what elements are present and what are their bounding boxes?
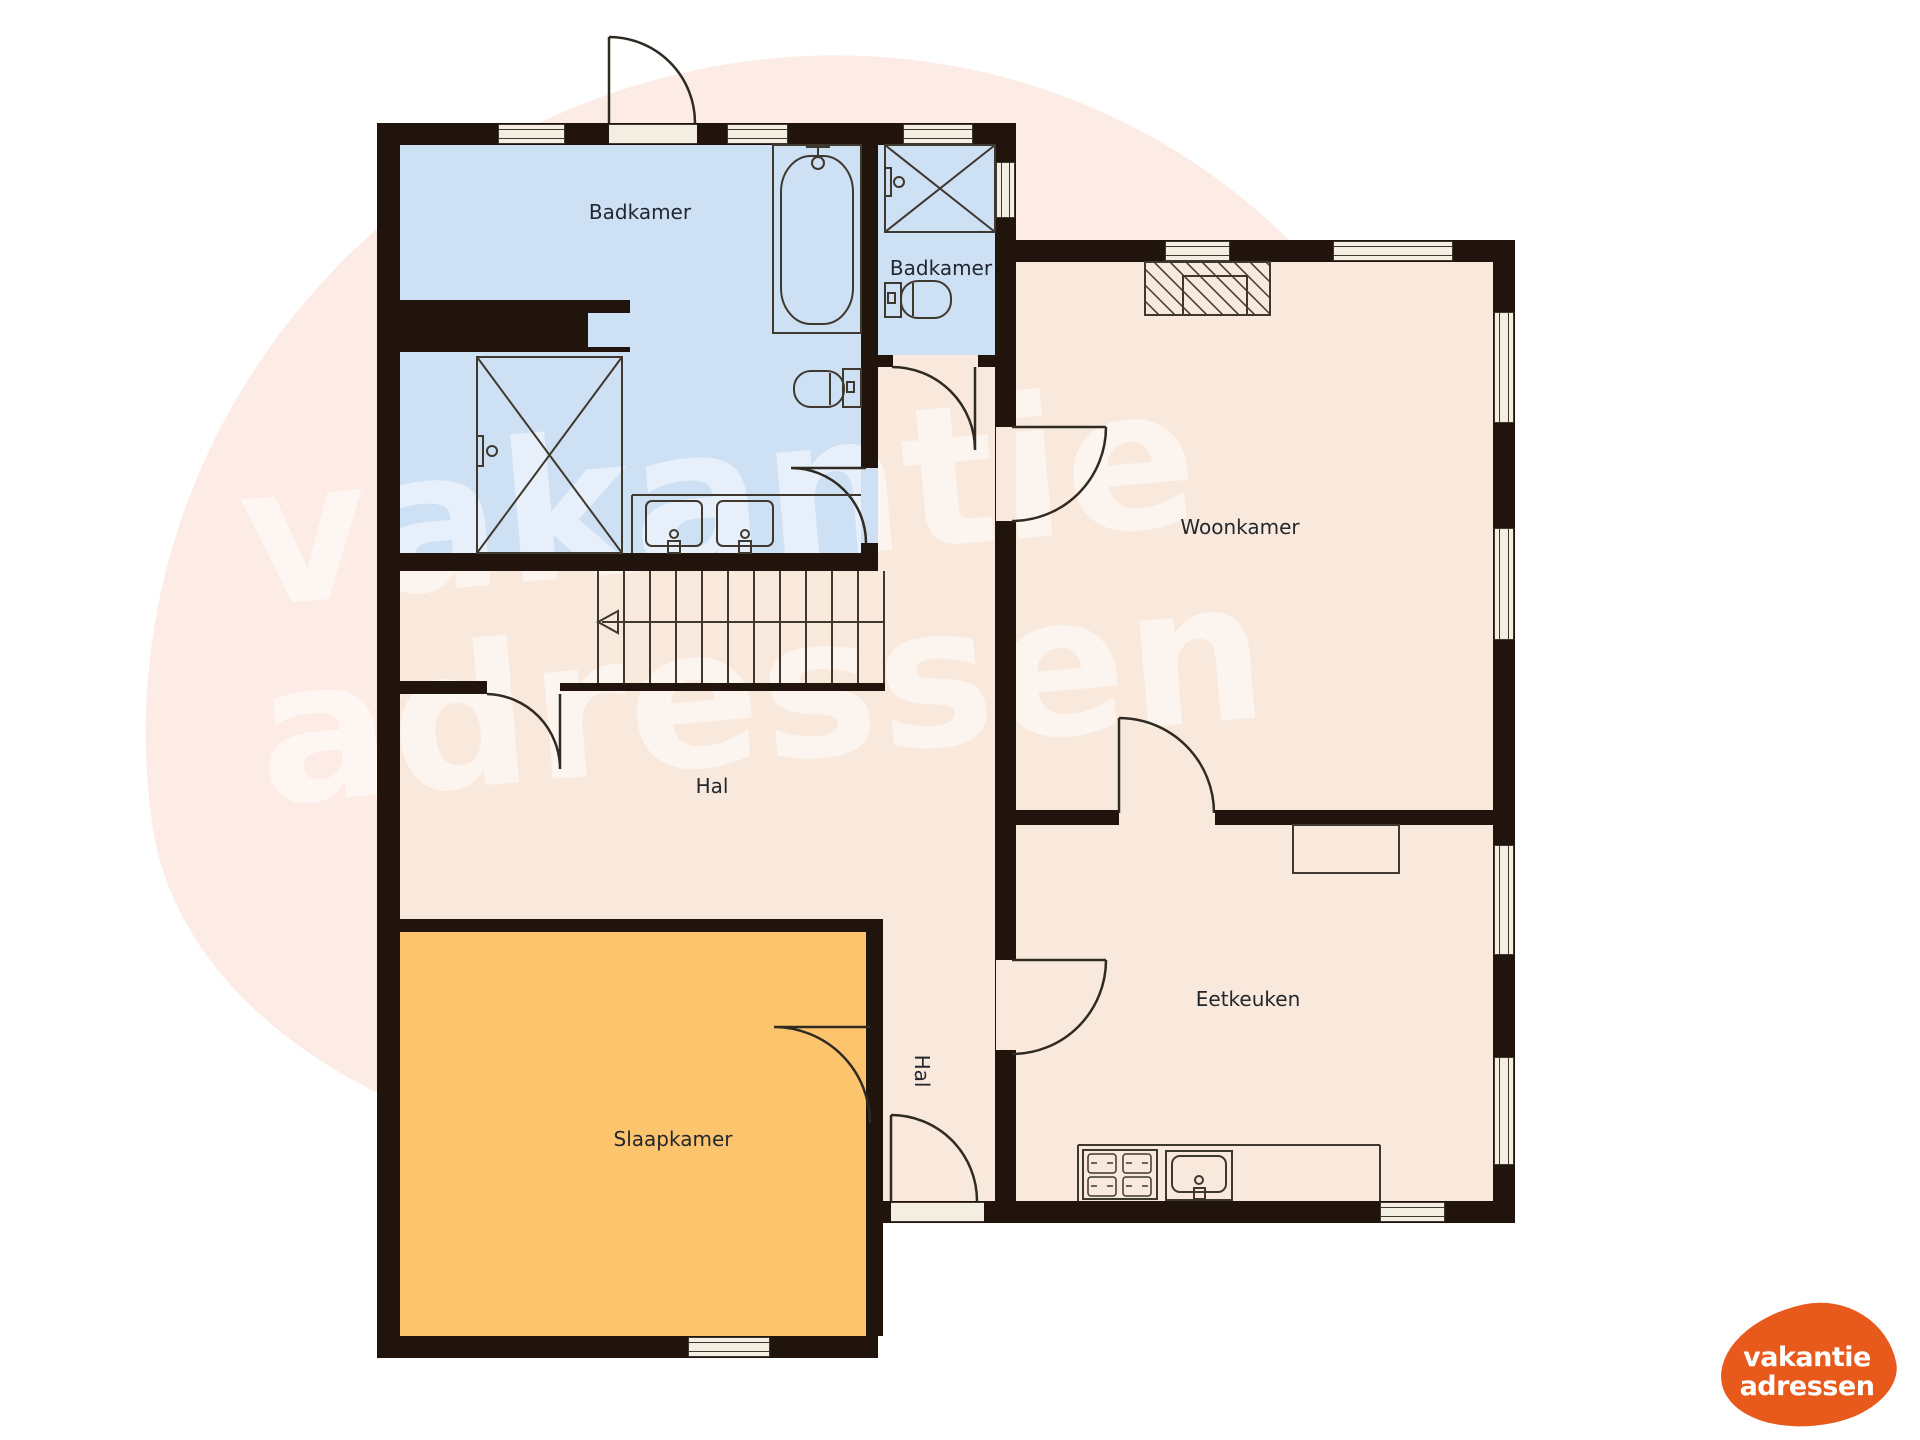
floorplan-canvas: vakantie adressen [0,0,1920,1440]
door-opening-badkamer [861,468,878,543]
door-opening-entry-bottom [891,1202,984,1222]
room-label-hal-klein: Hal [910,1055,934,1088]
brand-logo: vakantie adressen [1712,1295,1902,1435]
window [688,1337,770,1357]
room-label-hal: Hal [696,774,729,798]
window [1494,528,1514,640]
wall-woonkamer-eetkeuken [1012,810,1493,825]
floor-badkamer-2 [878,145,995,355]
window [1494,845,1514,955]
window [498,124,565,144]
window [1494,312,1514,423]
window [1380,1202,1445,1222]
room-label-woonkamer: Woonkamer [1180,515,1299,539]
wall-hal-nook [400,681,487,694]
wall-bottom-left [377,1336,878,1358]
floor-hal-klein [883,919,995,1201]
room-label-badkamer-2: Badkamer [890,256,992,280]
door-opening-woonkamer [996,427,1016,521]
room-label-eetkeuken: Eetkeuken [1196,987,1300,1011]
window [996,162,1015,218]
wall-bath-bottom [400,553,878,571]
door-opening-divider [1119,810,1215,825]
bath-closet-niche [588,313,630,347]
wall-stairs-edge [560,683,885,691]
window [727,124,788,144]
window [1165,241,1230,261]
window [903,124,973,144]
logo-line2: adressen [1740,1372,1875,1401]
window [1494,1057,1514,1165]
logo-line1: vakantie [1743,1343,1871,1372]
door-opening-badkamer2 [893,355,978,367]
room-label-slaapkamer: Slaapkamer [614,1127,733,1151]
wall-slaapkamer-right [866,932,883,1336]
window [1333,241,1453,261]
wall-left [377,123,400,1358]
logo-text: vakantie adressen [1712,1295,1902,1435]
wall-hal-slaapkamer [400,919,883,932]
floor-eetkeuken [1016,825,1493,1201]
room-label-badkamer-1: Badkamer [589,200,691,224]
wall-center-vertical [995,123,1016,1223]
door-opening-entry-top [609,124,697,144]
door-opening-eetkeuken [996,960,1016,1050]
